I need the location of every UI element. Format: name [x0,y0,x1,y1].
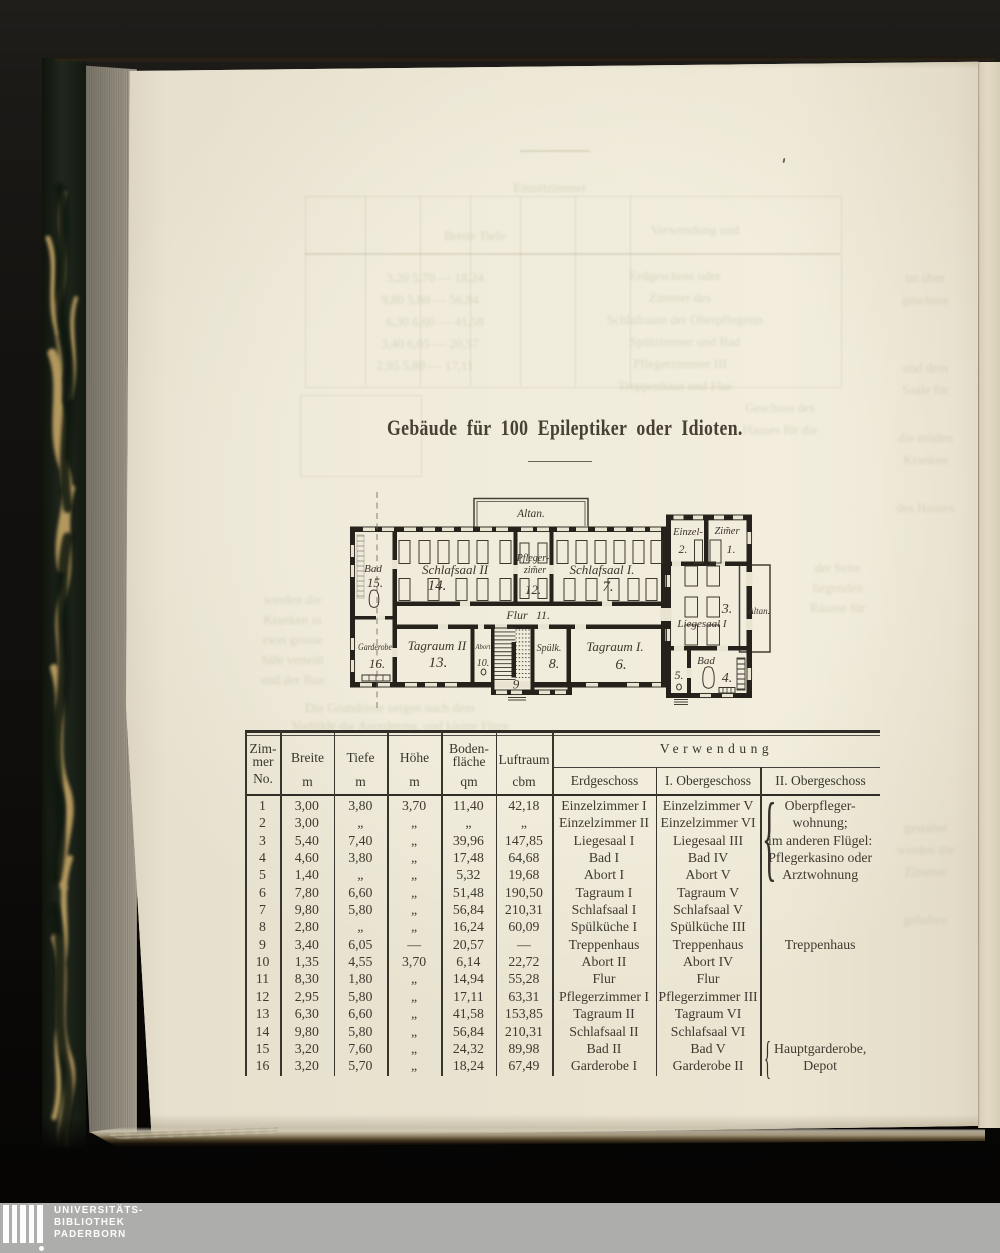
svg-text:11.: 11. [536,608,550,622]
svg-text:3.: 3. [721,602,733,617]
svg-text:15.: 15. [367,575,383,590]
svg-text:10.: 10. [477,658,490,669]
svg-text:1.: 1. [727,542,736,556]
svg-text:Spülk.: Spülk. [537,643,562,654]
svg-text:zim̃er: zim̃er [523,565,546,576]
svg-text:Garderobe: Garderobe [358,642,392,652]
svg-text:Tagraum I.: Tagraum I. [586,639,643,654]
svg-text:7.: 7. [602,579,613,595]
svg-text:4.: 4. [722,671,733,686]
svg-text:Altan.: Altan. [516,508,545,520]
svg-text:Liegesaal I: Liegesaal I [676,618,728,630]
svg-text:9: 9 [513,677,520,692]
svg-text:Altan.: Altan. [747,606,770,616]
svg-text:Bad: Bad [697,655,715,667]
svg-text:Abort: Abort [475,643,492,651]
svg-text:8.: 8. [549,657,560,672]
svg-text:5.: 5. [675,668,684,682]
svg-text:Schlafsaal I.: Schlafsaal I. [570,562,635,577]
svg-text:Zim̃er: Zim̃er [714,526,740,537]
svg-text:Einzel-: Einzel- [672,527,703,538]
svg-text:Tagraum II: Tagraum II [408,638,467,653]
svg-text:16.: 16. [369,656,385,671]
svg-text:Schlafsaal II: Schlafsaal II [422,562,489,577]
svg-text:6.: 6. [615,657,626,673]
svg-text:2.: 2. [679,542,688,556]
svg-text:14.: 14. [428,578,447,594]
svg-text:Bad: Bad [364,563,382,575]
svg-text:13.: 13. [429,655,448,671]
svg-text:12.: 12. [525,582,541,597]
svg-text:Pfleger-: Pfleger- [516,553,550,564]
svg-text:Flur: Flur [505,608,528,622]
